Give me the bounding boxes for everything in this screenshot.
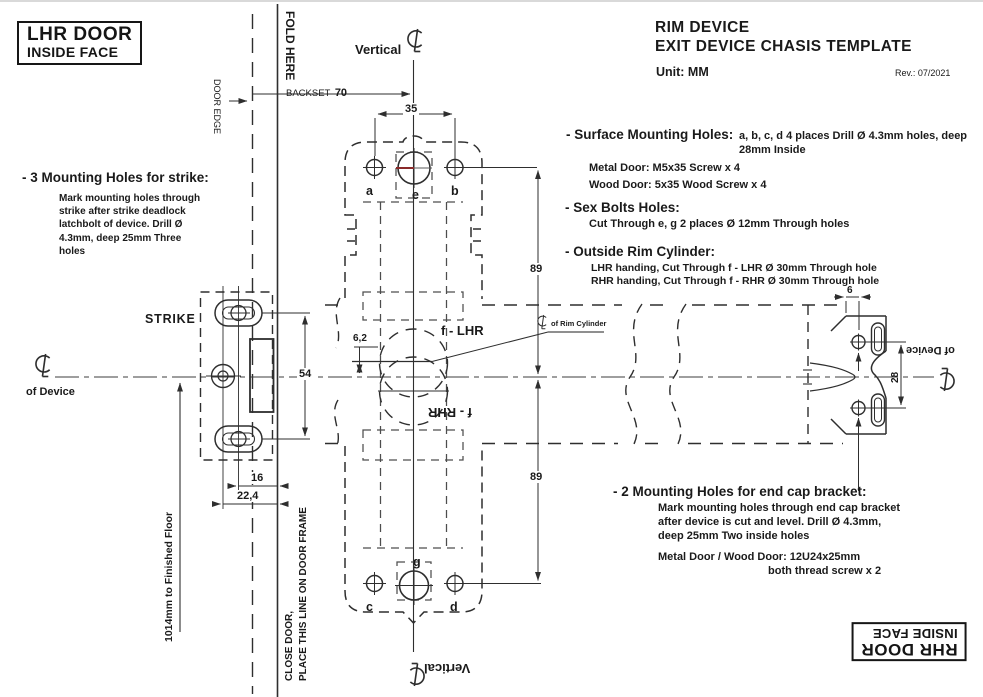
close-door-line1: CLOSE DOOR, xyxy=(283,507,297,681)
rhr-door-label: RHR DOOR xyxy=(861,640,958,658)
revision-label: Rev.: 07/2021 xyxy=(895,68,950,78)
template-drawing xyxy=(0,2,983,697)
floor-note-label: 1014mm to Finished Floor xyxy=(163,512,175,642)
dim-54-label: 54 xyxy=(297,368,313,380)
rim-cylinder-rhr: RHR handing, Cut Through f - RHR Ø 30mm … xyxy=(591,275,879,287)
dim-16-label: 16 xyxy=(249,472,265,484)
f-lhr-label: f - LHR xyxy=(441,323,484,338)
strike-holes-body: Mark mounting holes through strike after… xyxy=(59,192,200,258)
fold-here-label: FOLD HERE xyxy=(283,11,297,80)
hole-d-label: d xyxy=(450,600,458,614)
dim-6-label: 6 xyxy=(847,285,853,296)
surface-holes-heading: - Surface Mounting Holes: xyxy=(566,127,733,142)
centerline-icon xyxy=(940,369,954,392)
surface-holes-wood: Wood Door: 5x35 Wood Screw x 4 xyxy=(589,179,766,191)
end-cap-bracket xyxy=(803,305,886,443)
centerline-icon xyxy=(408,29,422,52)
of-device-label-left: of Device xyxy=(26,386,75,398)
strike-holes-heading: - 3 Mounting Holes for strike: xyxy=(22,170,209,185)
lhr-door-label: LHR DOOR xyxy=(27,25,132,45)
close-door-line2: PLACE THIS LINE ON DOOR FRAME xyxy=(297,507,311,681)
strike-label: STRIKE xyxy=(145,312,196,326)
vertical-label-bottom: Vertical xyxy=(424,661,470,676)
dim-6-2 xyxy=(354,347,378,373)
end-cap-screws2: both thread screw x 2 xyxy=(768,565,881,577)
sex-bolts-detail: Cut Through e, g 2 places Ø 12mm Through… xyxy=(589,218,849,230)
hole-g-label: g xyxy=(413,555,421,569)
backset-text: BACKSET xyxy=(286,88,330,99)
hole-b-label: b xyxy=(451,184,459,198)
close-door-label: CLOSE DOOR, PLACE THIS LINE ON DOOR FRAM… xyxy=(283,507,310,681)
centerline-icon xyxy=(538,315,546,329)
page-title-line1: RIM DEVICE xyxy=(655,19,749,37)
rim-cylinder-cl-label: of Rim Cylinder xyxy=(551,319,606,328)
surface-holes-spec2: 28mm Inside xyxy=(739,144,806,156)
f-rhr-label: f - RHR xyxy=(428,405,472,420)
of-device-label-right: of Device xyxy=(906,344,955,356)
end-cap-screws1: Metal Door / Wood Door: 12U24x25mm xyxy=(658,551,860,563)
end-cap-holes xyxy=(850,334,867,417)
door-edge-label: DOOR EDGE xyxy=(212,79,222,134)
dim-22-4-label: 22,4 xyxy=(235,490,260,502)
dim-6 xyxy=(834,297,871,330)
dim-89-top xyxy=(464,168,538,375)
unit-label: Unit: MM xyxy=(656,65,709,79)
centerline-icon xyxy=(36,354,50,377)
mounting-holes xyxy=(363,156,467,595)
vertical-label-top: Vertical xyxy=(355,42,401,57)
rim-cylinder-lhr: LHR handing, Cut Through f - LHR Ø 30mm … xyxy=(591,262,877,274)
page-title-line2: EXIT DEVICE CHASIS TEMPLATE xyxy=(655,38,912,56)
dim-35-label: 35 xyxy=(403,103,419,115)
sex-bolts-heading: - Sex Bolts Holes: xyxy=(565,200,680,215)
dim-35 xyxy=(375,114,455,156)
dim-6-2-label: 6,2 xyxy=(353,333,367,344)
surface-holes-spec1: a, b, c, d 4 places Drill Ø 4.3mm holes,… xyxy=(739,130,967,142)
hole-e-label: e xyxy=(412,188,419,202)
rim-cylinder-heading: - Outside Rim Cylinder: xyxy=(565,244,715,259)
backset-label: BACKSET 70 xyxy=(286,83,347,101)
hole-c-label: c xyxy=(366,600,373,614)
surface-holes-metal: Metal Door: M5x35 Screw x 4 xyxy=(589,162,740,174)
dim-89-bottom-label: 89 xyxy=(528,471,544,483)
dim-28-label: 28 xyxy=(890,372,901,383)
rhr-inside-face-label: INSIDE FACE xyxy=(861,626,958,640)
rhr-door-box: RHR DOOR INSIDE FACE xyxy=(852,622,967,661)
dim-89-top-label: 89 xyxy=(528,263,544,275)
lhr-inside-face-label: INSIDE FACE xyxy=(27,45,132,60)
backset-value: 70 xyxy=(335,87,347,99)
hole-a-label: a xyxy=(366,184,373,198)
end-cap-body: Mark mounting holes through end cap brac… xyxy=(658,502,900,544)
centerline-icon xyxy=(410,664,424,687)
end-cap-heading: - 2 Mounting Holes for end cap bracket: xyxy=(613,484,867,499)
template-page: LHR DOOR INSIDE FACE RHR DOOR INSIDE FAC… xyxy=(0,0,983,697)
lhr-door-box: LHR DOOR INSIDE FACE xyxy=(17,21,142,65)
